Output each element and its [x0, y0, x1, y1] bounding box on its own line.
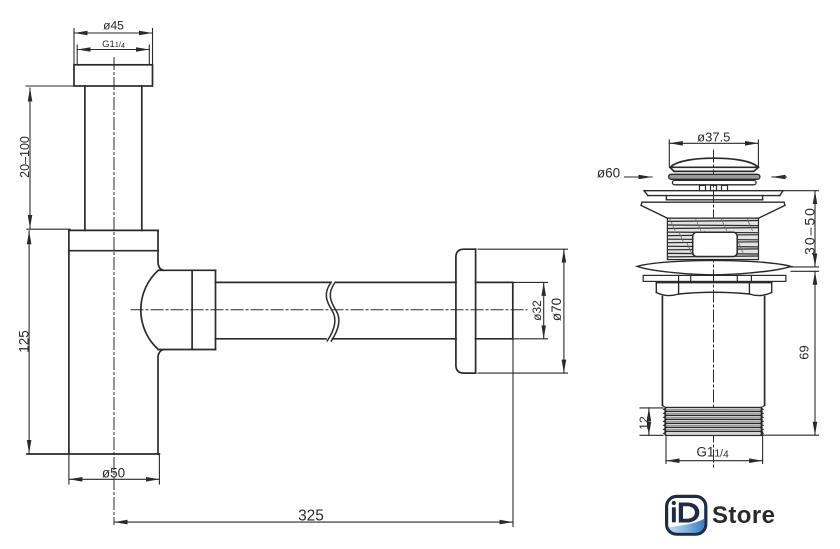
svg-text:12: 12 [637, 416, 651, 430]
svg-text:ø60: ø60 [597, 166, 620, 181]
svg-text:ø37.5: ø37.5 [697, 129, 730, 144]
svg-text:325: 325 [298, 508, 324, 525]
svg-text:G11/4: G11/4 [102, 39, 125, 50]
svg-text:20–100: 20–100 [18, 136, 32, 178]
svg-text:ø45: ø45 [103, 19, 124, 33]
svg-text:30–50: 30–50 [802, 206, 818, 255]
svg-text:ø32: ø32 [530, 300, 544, 321]
svg-text:ø50: ø50 [102, 466, 125, 481]
svg-text:G11/4: G11/4 [696, 445, 729, 461]
svg-text:125: 125 [17, 330, 32, 353]
svg-text:Store: Store [712, 502, 775, 529]
svg-text:ø70: ø70 [549, 298, 564, 321]
svg-text:69: 69 [797, 345, 812, 359]
